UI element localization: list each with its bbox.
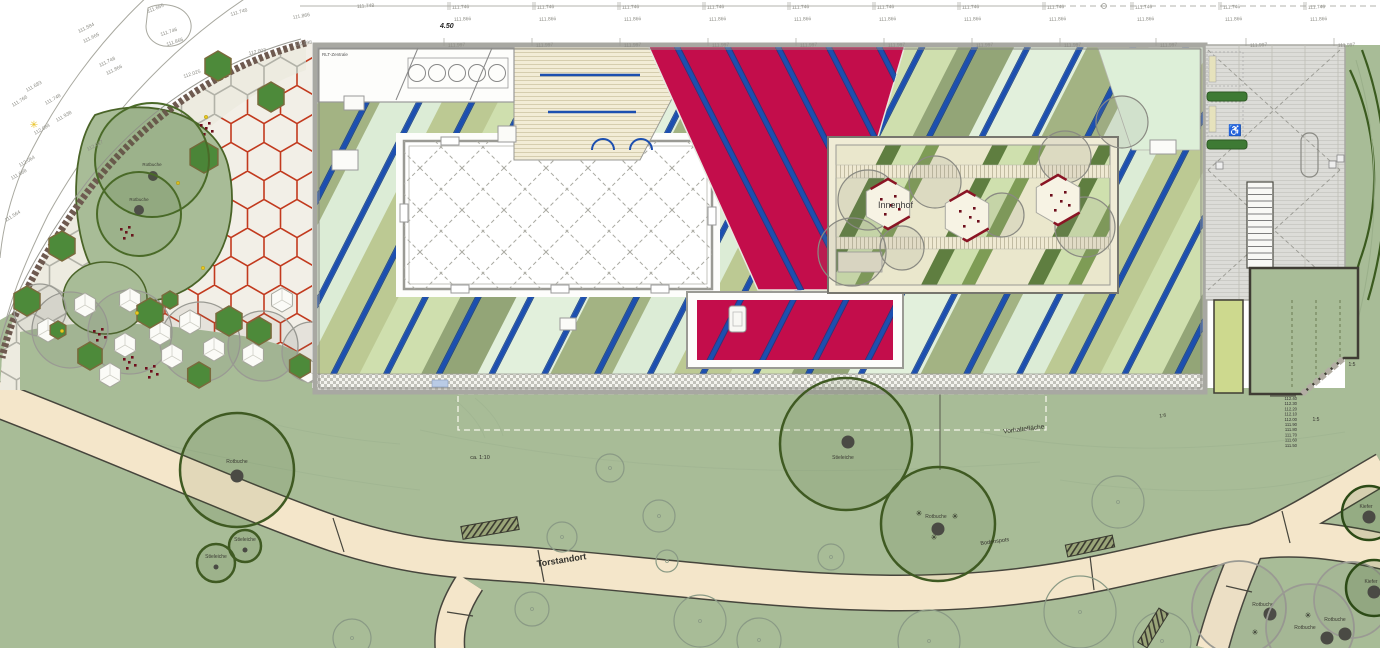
dimension-value: 4.50 [439, 23, 454, 30]
planter-hex [49, 231, 75, 261]
survey-label: 111.866 [879, 16, 897, 23]
chair-dot [98, 333, 101, 336]
courtyard-chair-dot [1054, 209, 1057, 212]
yard-paving [1205, 45, 1345, 300]
survey-label: 111.866 [1049, 16, 1067, 23]
survey-star-icon: ✳ [30, 120, 38, 131]
park-tree-trunk [842, 436, 855, 449]
courtyard-tree-canopy [1096, 96, 1148, 148]
south-walk-strip [315, 374, 1205, 392]
survey-label: 111.866 [454, 16, 472, 23]
site-plan-drawing: ✳✳✳✳✳ RotbucheRotbuche [0, 0, 1380, 648]
park-tree-label: Kiefer [1359, 504, 1372, 510]
light-dot [135, 311, 139, 315]
park-tree-label: Rotbuche [226, 459, 248, 465]
park-label: ca. 1:10 [470, 455, 490, 461]
panel-hatch [729, 306, 746, 332]
planter-hex [258, 82, 284, 112]
diamond-roof-lattice [404, 141, 712, 289]
planting-strip [1214, 300, 1243, 393]
park-label: 1:5 [1313, 417, 1320, 423]
park-tree-trunk [243, 548, 248, 553]
courtyard-chair-dot [1050, 194, 1053, 197]
survey-label: 111.746 [707, 4, 725, 11]
chair-dot [123, 358, 126, 361]
survey-label: 111.866 [1310, 16, 1328, 23]
light-dot [204, 115, 208, 119]
survey-label: 111.746 [452, 4, 470, 11]
courtyard-chair-dot [1064, 191, 1067, 194]
chair-dot [205, 127, 208, 130]
tree-label: Rotbuche [129, 197, 149, 202]
chair-dot [126, 367, 129, 370]
survey-label: 111.866 [964, 16, 982, 23]
park-tree-label: Stieleiche [205, 554, 227, 560]
chair-dot [145, 367, 148, 370]
innenhof-label: Innenhof [878, 200, 914, 210]
roof-box-ne [1150, 140, 1176, 154]
planter-hex [78, 342, 102, 370]
planter-hex [188, 362, 211, 388]
courtyard-chair-dot [1068, 204, 1071, 207]
planter-hex [290, 354, 311, 378]
wheelchair-icon: ♿ [1228, 124, 1242, 137]
park-tree-label: Rotbuche [925, 514, 947, 520]
park-tree-label: Rotbuche [1324, 617, 1346, 623]
light-dot [60, 329, 64, 333]
courtyard-tree-canopy [1039, 131, 1091, 183]
chair-dot [156, 373, 159, 376]
courtyard-chair-dot [884, 213, 887, 216]
tree-trunk-dot [134, 205, 144, 215]
survey-label: 111.997 [448, 42, 466, 49]
chair-dot [101, 328, 104, 331]
chair-dot [128, 361, 131, 364]
building-roof: Innenhof RLT-Zentrale [315, 45, 1205, 392]
chair-dot [211, 130, 214, 133]
courtyard-chair-dot [973, 207, 976, 210]
road-elevation-label: 111.748 [357, 3, 375, 10]
chair-dot [104, 336, 107, 339]
elevation-value: 111.50 [1285, 443, 1298, 448]
survey-label: 111.746 [792, 4, 810, 11]
park-tree-trunk [231, 470, 244, 483]
hedge-2 [1207, 140, 1247, 149]
survey-label: 111.746 [622, 4, 640, 11]
planter-hex [205, 51, 231, 81]
survey-label: 111.997 [1338, 42, 1356, 49]
park-tree-trunk [932, 523, 945, 536]
survey-label: 111.997 [976, 42, 994, 49]
survey-label: 111.997 [888, 42, 906, 49]
east-yard: ♿ [1205, 45, 1358, 396]
survey-label: 111.997 [1160, 42, 1178, 49]
chair-dot [134, 364, 137, 367]
courtyard-chair-dot [977, 220, 980, 223]
park-tree-trunk [214, 565, 219, 570]
survey-label: 111.866 [539, 16, 557, 23]
courtyard-chair-dot [969, 216, 972, 219]
planter-hex [216, 306, 242, 336]
courtyard-chair-dot [963, 225, 966, 228]
chair-dot [153, 365, 156, 368]
park-tree-trunk [1321, 632, 1334, 645]
planter-hex [14, 286, 40, 316]
chair-dot [148, 376, 151, 379]
survey-label: 111.997 [1250, 42, 1268, 49]
survey-label: 111.746 [1135, 4, 1153, 11]
survey-label: 111.997 [712, 42, 730, 49]
survey-label: 111.997 [800, 42, 818, 49]
survey-label: 111.866 [1137, 16, 1155, 23]
site-plan-stage: ✳✳✳✳✳ RotbucheRotbuche [0, 0, 1380, 648]
survey-label: 111.866 [1225, 16, 1243, 23]
park-tree-trunk [1339, 628, 1352, 641]
park-tree-trunk [1368, 586, 1380, 599]
tree-label: Rotbuche [142, 162, 162, 167]
chair-dot [96, 339, 99, 342]
planter-hex [162, 291, 178, 309]
strip-blue-inlay [432, 380, 448, 387]
park-tree-label: Stieleiche [234, 537, 256, 543]
survey-label: 111.866 [709, 16, 727, 23]
courtyard-tree-canopy [880, 226, 924, 270]
survey-label: 111.746 [1308, 4, 1326, 11]
park-tree-label: Rotbuche [1294, 625, 1316, 631]
survey-label: 111.997 [536, 42, 554, 49]
courtyard-chair-dot [959, 210, 962, 213]
chair-dot [208, 122, 211, 125]
survey-label: 111.866 [794, 16, 812, 23]
park-tree-label: Stieleiche [832, 455, 854, 461]
chair-dot [131, 356, 134, 359]
survey-label: 111.746 [537, 4, 555, 11]
chair-dot [93, 330, 96, 333]
courtyard-tree-canopy [818, 218, 886, 286]
park-label: 1:6 [1159, 413, 1167, 420]
park-label: 1:5 [1349, 362, 1356, 368]
survey-label: 111.746 [1047, 4, 1065, 11]
park-tree-trunk [1363, 511, 1376, 524]
survey-label: 111.866 [624, 16, 642, 23]
survey-label: 111.746 [1223, 4, 1241, 11]
courtyard-chair-dot [1060, 200, 1063, 203]
courtyard-chair-dot [894, 195, 897, 198]
hedge-1 [1207, 92, 1247, 101]
survey-label: 111.746 [962, 4, 980, 11]
park-tree [197, 544, 235, 582]
survey-label: 111.997 [624, 42, 642, 49]
chair-dot [200, 124, 203, 127]
survey-label: 111.746 [877, 4, 895, 11]
light-dot [201, 266, 205, 270]
park-tree-label: Kiefer [1364, 579, 1377, 585]
red-panel-stripes [697, 300, 893, 360]
rlt-label: RLT-Zentrale [322, 52, 348, 57]
planter-hex [247, 317, 271, 345]
chair-dot [150, 370, 153, 373]
planter-hex [137, 298, 163, 328]
survey-label: 111.997 [1064, 42, 1082, 49]
